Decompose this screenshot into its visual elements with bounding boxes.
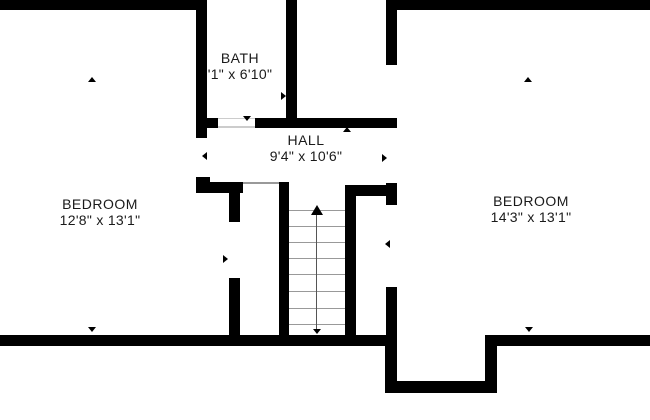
wall-stair-left xyxy=(279,182,289,340)
stair-line-tail-icon xyxy=(313,329,321,334)
bath-name: BATH xyxy=(208,50,273,66)
stair-tread xyxy=(289,226,345,227)
wall-alcove-bottom xyxy=(385,381,497,393)
wall-right-bedroom-left-upper xyxy=(386,0,397,65)
room-label-bedroom-right: BEDROOM 14'3" x 13'1" xyxy=(491,193,572,225)
left-bedroom-up-arrow-icon xyxy=(88,77,96,82)
wall-top-right xyxy=(386,0,650,10)
left-bedroom-right-arrow-icon xyxy=(223,255,228,263)
stair-tread xyxy=(289,274,345,275)
wall-left-closet-lower xyxy=(229,278,240,338)
right-bedroom-dimensions: 14'3" x 13'1" xyxy=(491,209,572,225)
stair-tread xyxy=(289,258,345,259)
right-bedroom-up-arrow-icon xyxy=(524,77,532,82)
floor-plan: BATH '1" x 6'10" HALL 9'4" x 10'6" BEDRO… xyxy=(0,0,650,420)
left-closet-opening-header xyxy=(243,182,279,184)
wall-hall-top xyxy=(255,118,397,128)
stair-direction-line xyxy=(316,214,317,331)
hall-up-arrow-icon xyxy=(343,127,351,132)
left-bedroom-dimensions: 12'8" x 13'1" xyxy=(60,212,141,228)
wall-stair-right xyxy=(345,196,356,340)
bath-left-arrow-icon xyxy=(202,92,207,100)
wall-bottom-left xyxy=(0,335,397,346)
left-bedroom-down-arrow-icon xyxy=(88,327,96,332)
room-label-hall: HALL 9'4" x 10'6" xyxy=(270,132,343,164)
stair-tread xyxy=(289,324,345,325)
wall-bath-bottom-stub xyxy=(196,118,218,128)
hall-right-arrow-icon xyxy=(382,154,387,162)
stair-tread xyxy=(289,291,345,292)
hall-dimensions: 9'4" x 10'6" xyxy=(270,148,343,164)
stair-up-arrow-icon xyxy=(311,205,323,215)
wall-top-left xyxy=(0,0,207,10)
right-bedroom-left-arrow-icon xyxy=(385,240,390,248)
room-label-bedroom-left: BEDROOM 12'8" x 13'1" xyxy=(60,196,141,228)
wall-right-bedroom-left-mid xyxy=(386,183,397,205)
left-bedroom-name: BEDROOM xyxy=(60,196,141,212)
stair-tread xyxy=(289,242,345,243)
bath-right-arrow-icon xyxy=(281,92,286,100)
hall-name: HALL xyxy=(270,132,343,148)
hall-left-arrow-icon xyxy=(202,152,207,160)
wall-left-closet-upper xyxy=(229,187,240,222)
stair-tread xyxy=(289,308,345,309)
bath-door-opening-line-bottom xyxy=(218,126,255,128)
wall-bath-right xyxy=(286,0,297,128)
bath-down-arrow-icon xyxy=(243,116,251,121)
room-label-bath: BATH '1" x 6'10" xyxy=(208,50,273,82)
bath-dimensions: '1" x 6'10" xyxy=(208,66,273,82)
wall-bottom-right xyxy=(487,335,650,346)
right-bedroom-down-arrow-icon xyxy=(525,327,533,332)
right-bedroom-name: BEDROOM xyxy=(491,193,572,209)
